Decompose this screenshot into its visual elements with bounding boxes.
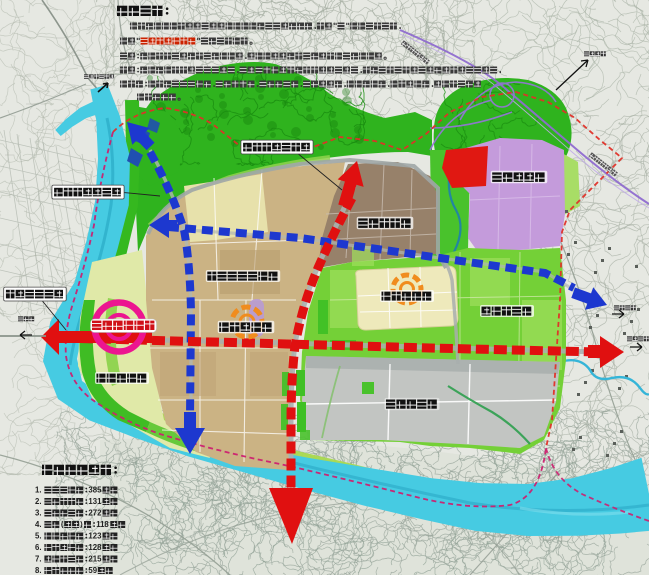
svg-text:2.: 2. (35, 497, 42, 506)
svg-text:4.: 4. (35, 520, 42, 529)
svg-text:3.: 3. (35, 509, 42, 518)
svg-text:131: 131 (88, 497, 102, 506)
svg-text:272: 272 (88, 509, 102, 518)
svg-text:7.: 7. (35, 555, 42, 564)
svg-text:118: 118 (96, 520, 109, 529)
svg-text:8.: 8. (35, 566, 42, 575)
svg-text:59: 59 (88, 566, 97, 575)
svg-text:128: 128 (88, 543, 102, 552)
svg-text:215: 215 (88, 555, 102, 564)
svg-text:6.: 6. (35, 543, 42, 552)
svg-text:123: 123 (88, 532, 102, 541)
svg-text:385: 385 (88, 486, 102, 495)
svg-text:1.: 1. (35, 486, 42, 495)
svg-text:5.: 5. (35, 532, 42, 541)
